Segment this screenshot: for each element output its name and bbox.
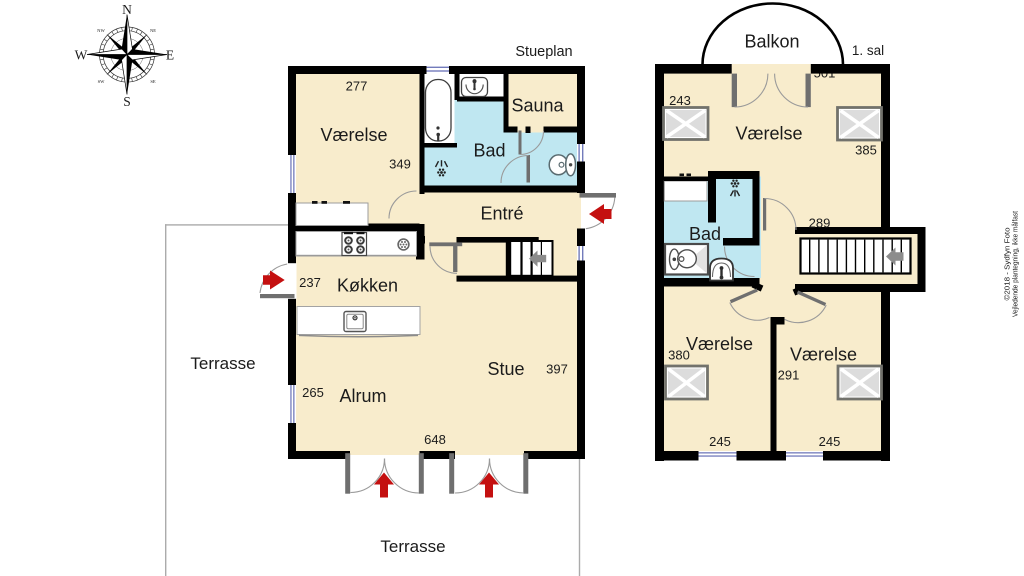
- svg-text:380: 380: [668, 348, 690, 363]
- svg-text:Stue: Stue: [487, 359, 524, 379]
- svg-text:237: 237: [299, 275, 321, 290]
- svg-text:Værelse: Værelse: [790, 345, 857, 365]
- svg-text:1. sal: 1. sal: [852, 43, 884, 58]
- svg-text:385: 385: [855, 143, 877, 158]
- svg-text:Værelse: Værelse: [735, 124, 802, 144]
- svg-text:Bad: Bad: [689, 224, 721, 244]
- svg-text:243: 243: [669, 93, 691, 108]
- svg-text:Stueplan: Stueplan: [515, 44, 572, 60]
- svg-text:277: 277: [346, 79, 368, 94]
- svg-text:SE: SE: [150, 79, 156, 84]
- svg-text:E: E: [166, 47, 174, 62]
- svg-text:N: N: [122, 2, 132, 17]
- svg-text:Balkon: Balkon: [744, 32, 799, 52]
- svg-text:Bad: Bad: [473, 141, 505, 161]
- svg-text:Entré: Entré: [480, 204, 523, 224]
- svg-text:Terrasse: Terrasse: [380, 537, 445, 556]
- svg-text:349: 349: [389, 157, 411, 172]
- svg-text:Køkken: Køkken: [337, 276, 398, 296]
- svg-text:648: 648: [424, 432, 446, 447]
- svg-text:Værelse: Værelse: [320, 125, 387, 145]
- svg-text:SW: SW: [98, 79, 106, 84]
- svg-text:397: 397: [546, 362, 568, 377]
- svg-text:245: 245: [709, 434, 731, 449]
- svg-text:Terrasse: Terrasse: [190, 354, 255, 373]
- svg-text:NE: NE: [150, 28, 156, 33]
- svg-text:NW: NW: [97, 28, 105, 33]
- svg-text:265: 265: [302, 385, 324, 400]
- svg-text:291: 291: [778, 368, 800, 383]
- svg-text:245: 245: [819, 434, 841, 449]
- svg-text:Værelse: Værelse: [686, 334, 753, 354]
- svg-text:S: S: [123, 94, 131, 109]
- svg-text:Alrum: Alrum: [339, 386, 386, 406]
- svg-text:W: W: [75, 47, 88, 62]
- svg-text:Vejledende plantegning, ikke m: Vejledende plantegning, ikke målfast: [1011, 211, 1020, 317]
- svg-text:Sauna: Sauna: [511, 96, 564, 116]
- svg-text:289: 289: [809, 216, 831, 231]
